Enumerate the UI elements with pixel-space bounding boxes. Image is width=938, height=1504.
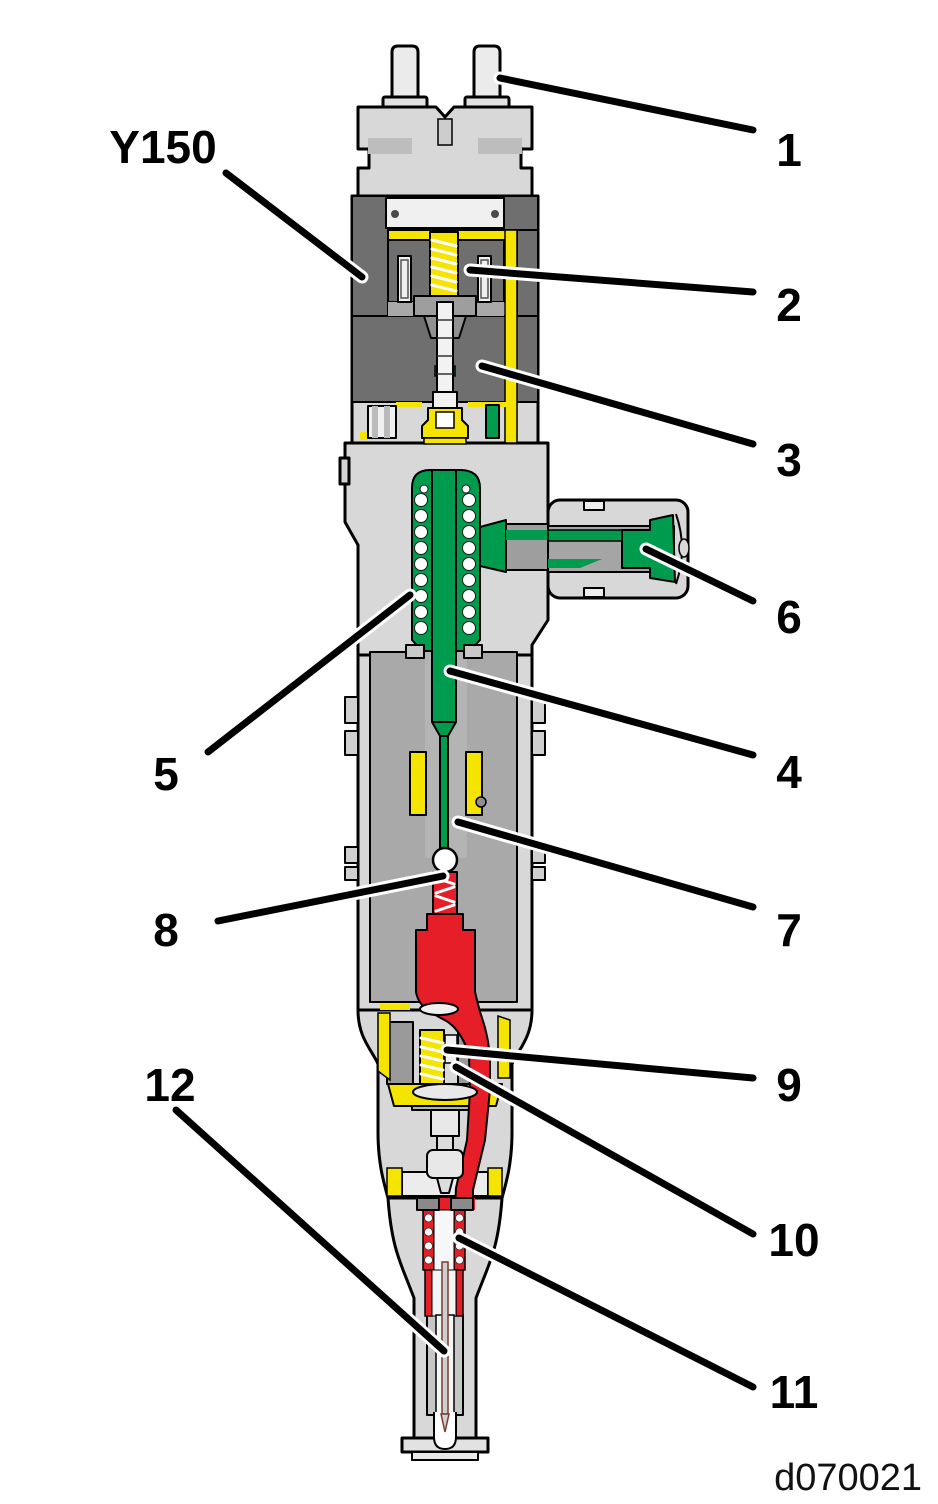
port-tab-top (584, 501, 604, 510)
valve-stem-neck (437, 1136, 453, 1150)
valve-stem-upper (437, 302, 453, 402)
solenoid-pillar-left (352, 196, 388, 316)
needle-shaft (442, 1262, 448, 1414)
callout-10: 10 (768, 1214, 819, 1266)
port-fuel-band (548, 530, 626, 541)
lower-seal-wedge-left (378, 1013, 390, 1080)
callout-8: 8 (153, 904, 179, 956)
needle-bore-upper (434, 1210, 454, 1270)
port-tab-bottom (584, 588, 604, 597)
connector-pin-right (474, 46, 500, 97)
pilot-valve-foot (424, 438, 466, 444)
nozzle-foot-step (412, 1452, 478, 1460)
body-rib (345, 731, 358, 755)
callout-11: 11 (770, 1366, 819, 1418)
bore-screw (476, 797, 486, 807)
gasket-seam (396, 402, 422, 407)
body-rib (345, 847, 358, 863)
spring-seat-right (464, 645, 482, 658)
supply-link (480, 520, 506, 572)
port-end-notch (679, 539, 689, 557)
connector-key-slot (438, 119, 452, 145)
lower-gasket (380, 1004, 410, 1010)
leader-line-1 (500, 78, 753, 130)
injector-cutaway-figure: Y150 1 2 3 6 4 5 7 8 9 12 10 11 d070021 (0, 0, 938, 1504)
connector-rivet (491, 210, 499, 218)
callout-9: 9 (776, 1059, 802, 1111)
connector-center (386, 198, 504, 228)
valve-stem-tip (437, 1178, 453, 1193)
leader-line-y150 (226, 173, 362, 277)
callout-5: 5 (153, 748, 179, 800)
nozzle-cap-right (451, 1198, 473, 1210)
body-rib (345, 697, 358, 723)
plunger-rod (440, 736, 448, 852)
solenoid-slot-left (398, 256, 411, 302)
connector-pin-left (392, 46, 418, 97)
solenoid-pillar-right-top (504, 196, 538, 230)
device-label: Y150 (109, 121, 216, 173)
callout-6: 6 (776, 591, 802, 643)
stem-end (433, 392, 457, 408)
body-rib (345, 867, 358, 880)
needle-duct-right (456, 1270, 463, 1316)
right-seal-strip (505, 230, 517, 443)
spring-seat-left (406, 645, 424, 658)
valve-stem-bulb (427, 1150, 463, 1178)
mid-seal-left (410, 752, 426, 815)
connector-shade-left (368, 138, 412, 154)
solenoid-slot-right (478, 256, 491, 302)
injector-cutaway-svg: Y150 1 2 3 6 4 5 7 8 9 12 10 11 d070021 (0, 0, 938, 1504)
body-rib (532, 867, 545, 880)
needle-duct-left (425, 1270, 432, 1316)
nozzle-cap-left (417, 1198, 439, 1210)
callout-12: 12 (144, 1059, 195, 1111)
callout-2: 2 (776, 279, 802, 331)
body-rib (532, 731, 545, 755)
pilot-valve-core (436, 412, 454, 428)
nozzle-seal-left (387, 1168, 402, 1196)
connector-rivet (391, 210, 399, 218)
valve-top-washer (420, 1003, 458, 1015)
port-fuel-band (506, 530, 548, 540)
valve-housing-left (387, 1022, 413, 1084)
valve-stem-lower (431, 1110, 459, 1136)
leader-line-11 (459, 1238, 753, 1387)
connector-shade-right (478, 138, 522, 154)
canister-band (384, 406, 390, 438)
callout-7: 7 (776, 904, 802, 956)
nozzle-seal-right (488, 1168, 502, 1196)
callout-3: 3 (776, 434, 802, 486)
body-rib (340, 458, 349, 484)
lower-seal-wedge-right (498, 1016, 510, 1078)
callout-1: 1 (776, 124, 802, 176)
seat-disc (413, 1084, 477, 1100)
canister-band (372, 406, 378, 438)
drawing-number: d070021 (774, 1457, 922, 1499)
supply-gallery-bar (486, 405, 499, 438)
check-ball (433, 848, 457, 872)
plunger-upper (432, 470, 456, 722)
callout-4: 4 (776, 746, 802, 798)
